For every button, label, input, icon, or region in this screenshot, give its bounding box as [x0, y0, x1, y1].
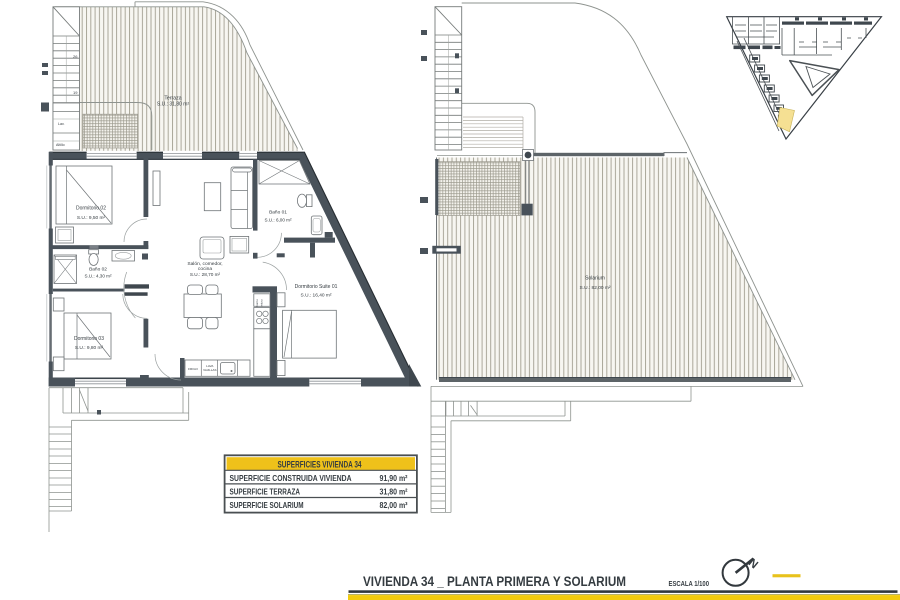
svg-text:S.U.: 9,80 m²: S.U.: 9,80 m² — [75, 345, 104, 351]
svg-text:91,90 m²: 91,90 m² — [380, 473, 408, 483]
svg-text:VAJILLAS: VAJILLAS — [203, 368, 216, 372]
svg-text:SUPERFICIE TERRAZA: SUPERFICIE TERRAZA — [230, 487, 301, 497]
svg-text:26: 26 — [73, 54, 78, 59]
svg-text:31,80 m²: 31,80 m² — [380, 487, 408, 497]
svg-text:VIVIENDA 34 _ PLANTA PRIMERA Y: VIVIENDA 34 _ PLANTA PRIMERA Y SOLARIUM — [363, 574, 626, 590]
svg-text:S.U.: 28,70 m²: S.U.: 28,70 m² — [190, 272, 221, 277]
svg-text:micro: micro — [260, 299, 264, 307]
svg-text:Baño 02: Baño 02 — [89, 267, 107, 273]
svg-text:Baño 01: Baño 01 — [269, 210, 287, 216]
svg-text:ESCALA 1/100: ESCALA 1/100 — [669, 581, 710, 588]
svg-text:horno: horno — [255, 299, 259, 307]
svg-text:Lav.: Lav. — [58, 122, 65, 126]
svg-text:S.U.: 6,00 m²: S.U.: 6,00 m² — [264, 218, 292, 223]
svg-text:SUPERFICIES VIVIENDA 34: SUPERFICIES VIVIENDA 34 — [278, 460, 362, 470]
svg-text:Dormitorio 02: Dormitorio 02 — [76, 206, 106, 212]
svg-text:S.U.: 82,00 m²: S.U.: 82,00 m² — [580, 285, 611, 291]
svg-text:S.U.: 4,30 m²: S.U.: 4,30 m² — [84, 274, 112, 279]
svg-text:SUPERFICIE SOLARIUM: SUPERFICIE SOLARIUM — [230, 500, 304, 510]
svg-text:FRIGO: FRIGO — [188, 367, 198, 371]
svg-text:Dormitorio Suite 01: Dormitorio Suite 01 — [295, 284, 338, 290]
svg-text:Dormitorio 03: Dormitorio 03 — [74, 336, 104, 342]
svg-text:S.U.: 9,50 m²: S.U.: 9,50 m² — [77, 215, 106, 221]
svg-text:S.U.: 31,80 m²: S.U.: 31,80 m² — [157, 102, 190, 108]
svg-text:Altillo: Altillo — [56, 143, 65, 147]
svg-text:19: 19 — [73, 90, 78, 95]
svg-text:Solarium: Solarium — [585, 276, 605, 282]
svg-text:S.U.: 16,40 m²: S.U.: 16,40 m² — [301, 293, 332, 299]
svg-text:Salón, comedor,: Salón, comedor, — [187, 261, 222, 267]
svg-text:SUPERFICIE CONSTRUIDA VIVIENDA: SUPERFICIE CONSTRUIDA VIVIENDA — [230, 473, 352, 483]
svg-text:82,00 m³: 82,00 m³ — [380, 500, 408, 510]
